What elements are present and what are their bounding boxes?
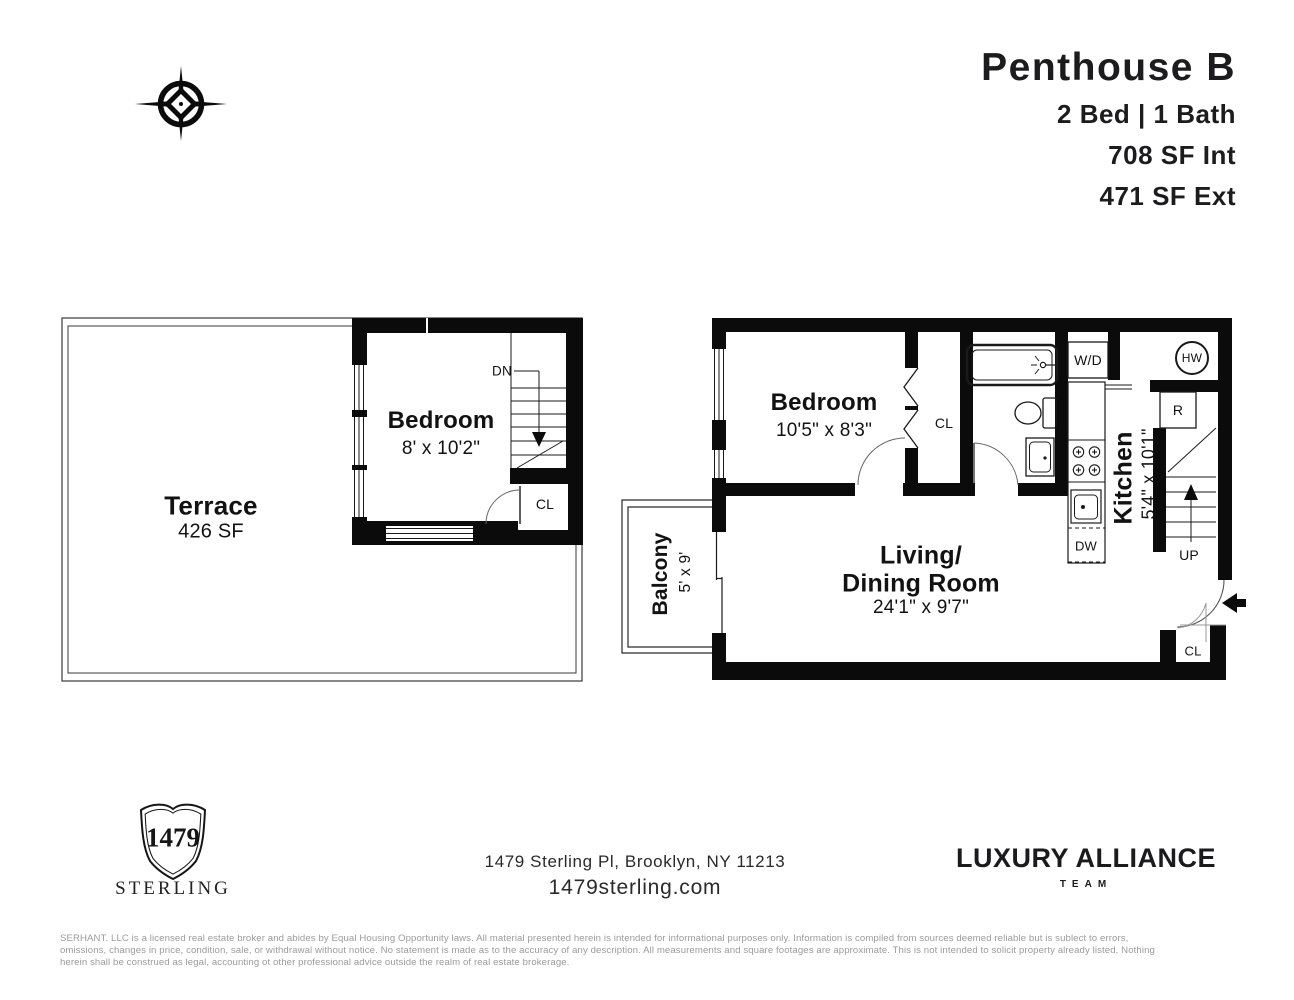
sliding-door-icon <box>717 532 723 633</box>
upper-bottom-window-icon <box>386 526 473 541</box>
logo-name: STERLING <box>93 878 253 900</box>
balcony-dims: 5' x 9' <box>677 552 695 593</box>
stove-icon <box>1073 447 1099 475</box>
living-room-label-2: Dining Room <box>842 570 1000 599</box>
main-bedroom-dims: 10'5" x 8'3" <box>776 420 872 442</box>
kitchen-sink-icon <box>1071 490 1101 523</box>
exterior-sf-label: 471 SF Ext <box>981 176 1236 217</box>
main-bedroom-label: Bedroom <box>771 389 878 417</box>
kitchen-dims: 5'4" x 10'1" <box>1139 428 1160 519</box>
entry-arrow-icon <box>1222 593 1246 613</box>
upper-window-icons <box>355 365 364 517</box>
window-mullion <box>426 318 428 333</box>
interior-sf-label: 708 SF Int <box>981 135 1236 176</box>
team-logo: LUXURY ALLIANCE TEAM <box>935 843 1237 892</box>
bathroom-door-icon <box>974 443 1018 485</box>
team-sub: TEAM <box>935 877 1237 892</box>
hot-water-label: HW <box>1182 351 1202 365</box>
refrigerator-label: R <box>1173 402 1183 418</box>
website-link[interactable]: 1479sterling.com <box>385 873 885 902</box>
entry-closet-label: CL <box>1184 644 1201 659</box>
terrace-area-label: 426 SF <box>178 521 244 544</box>
address-line: 1479 Sterling Pl, Brooklyn, NY 11213 <box>385 851 885 873</box>
disclaimer: SERHANT. LLC is a licensed real estate b… <box>60 933 1242 970</box>
bedroom-closet-label: CL <box>935 415 953 431</box>
balcony-label: Balcony <box>649 532 673 615</box>
logo-number: 1479 <box>146 823 200 854</box>
page-title: Penthouse B <box>981 42 1236 94</box>
disclaimer-line-1: SERHANT. LLC is a licensed real estate b… <box>60 933 1242 945</box>
unit-summary: Penthouse B 2 Bed | 1 Bath 708 SF Int 47… <box>981 42 1236 217</box>
washer-dryer-label: W/D <box>1074 352 1102 368</box>
terrace-label: Terrace <box>164 491 257 522</box>
bathroom-sink-icon <box>1026 438 1054 476</box>
upper-bedroom-label: Bedroom <box>388 407 495 435</box>
team-name: LUXURY ALLIANCE <box>935 843 1237 874</box>
stairs-up-label: UP <box>1179 547 1199 563</box>
living-room-dims: 24'1" x 9'7" <box>873 597 969 619</box>
dishwasher-label: DW <box>1075 539 1097 554</box>
beds-baths-label: 2 Bed | 1 Bath <box>981 94 1236 135</box>
disclaimer-line-3: herein shall be construed as legal, acco… <box>60 957 1242 969</box>
floorplan-flyer: Penthouse B 2 Bed | 1 Bath 708 SF Int 47… <box>0 0 1294 1000</box>
address-block: 1479 Sterling Pl, Brooklyn, NY 11213 147… <box>385 851 885 902</box>
upper-closet-label: CL <box>536 496 554 512</box>
compass-rose-icon <box>135 66 227 141</box>
toilet-icon <box>1015 398 1056 428</box>
main-window-icons <box>715 349 724 478</box>
upper-bedroom-dims: 8' x 10'2" <box>402 438 480 460</box>
kitchen-label: Kitchen <box>1110 431 1139 524</box>
disclaimer-line-2: omissions, changes in price, condition, … <box>60 945 1242 957</box>
living-room-label-1: Living/ <box>880 542 962 571</box>
bathtub-icon <box>967 345 1057 385</box>
stairs-down-label: DN <box>492 364 512 379</box>
bedroom-door-icon <box>858 438 905 485</box>
